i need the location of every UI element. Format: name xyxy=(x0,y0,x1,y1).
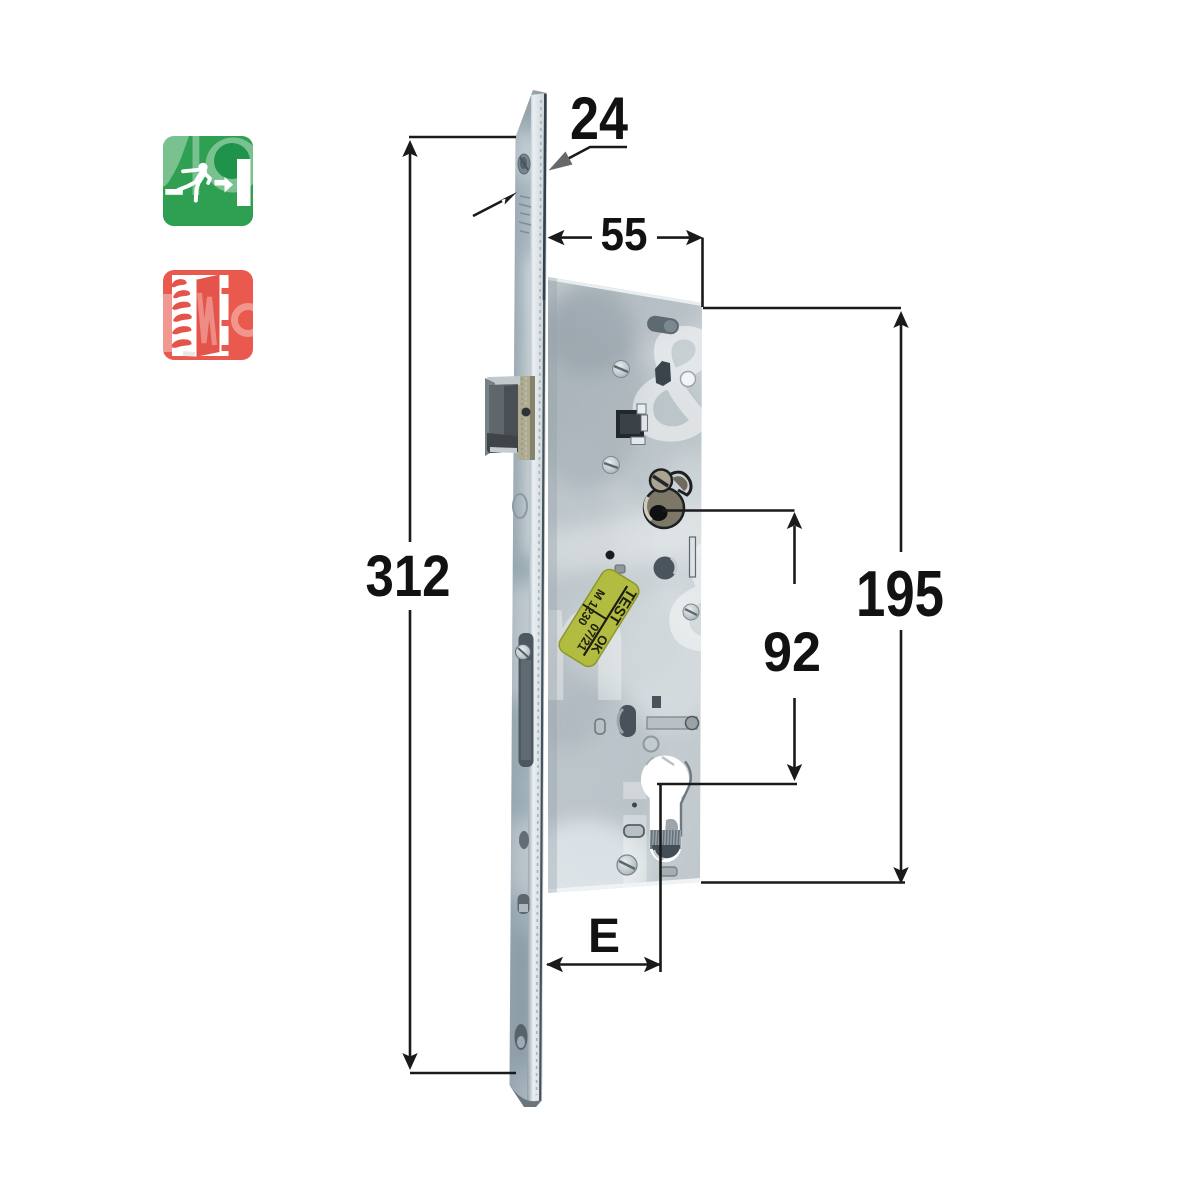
svg-text:24: 24 xyxy=(570,85,629,152)
svg-text:55: 55 xyxy=(601,208,648,260)
svg-text:92: 92 xyxy=(763,620,821,683)
svg-text:195: 195 xyxy=(856,557,944,630)
svg-text:E: E xyxy=(588,910,620,963)
svg-text:312: 312 xyxy=(366,544,451,609)
